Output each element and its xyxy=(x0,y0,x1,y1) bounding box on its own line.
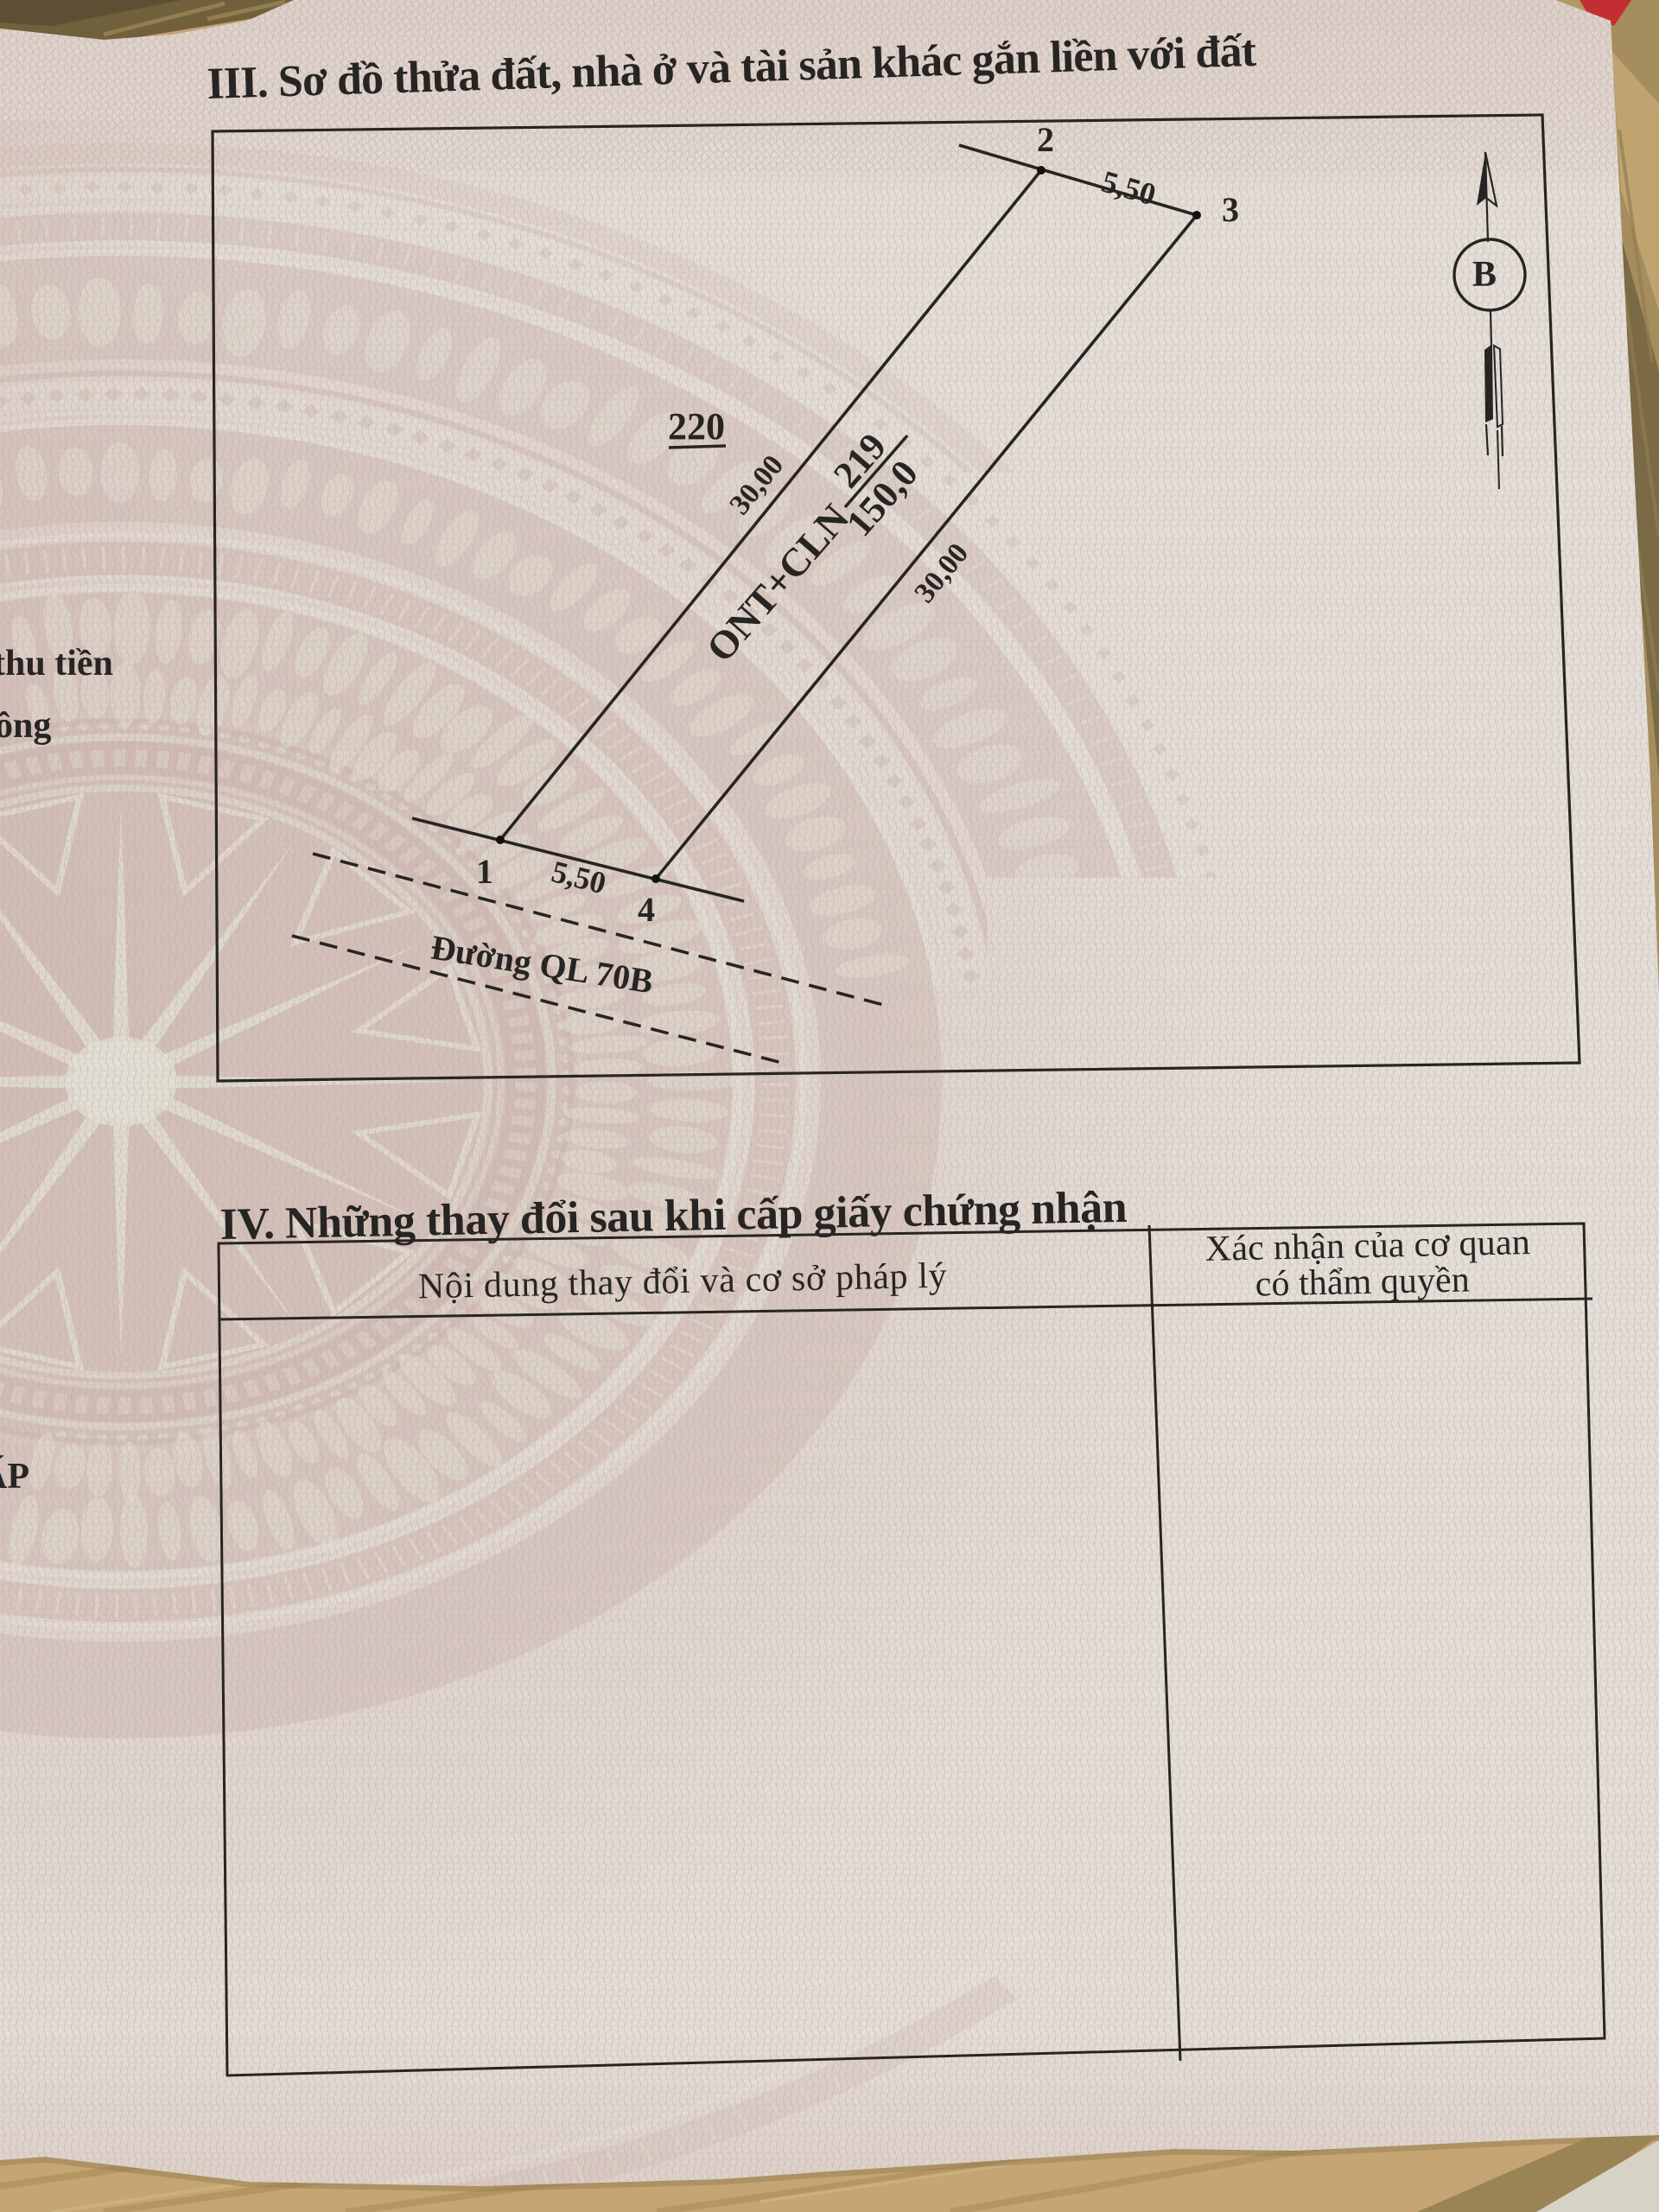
svg-text:ẤP: ẤP xyxy=(0,1455,29,1497)
svg-text:3: 3 xyxy=(1222,190,1239,229)
svg-text:ông: ông xyxy=(0,706,51,746)
svg-text:B: B xyxy=(1472,255,1497,295)
svg-text:4: 4 xyxy=(638,890,655,929)
svg-text:1: 1 xyxy=(476,852,493,891)
svg-text:có thẩm quyền: có thẩm quyền xyxy=(1255,1260,1470,1304)
svg-text:thu tiền: thu tiền xyxy=(0,644,113,683)
svg-text:2: 2 xyxy=(1037,120,1054,159)
svg-text:220: 220 xyxy=(668,405,725,448)
